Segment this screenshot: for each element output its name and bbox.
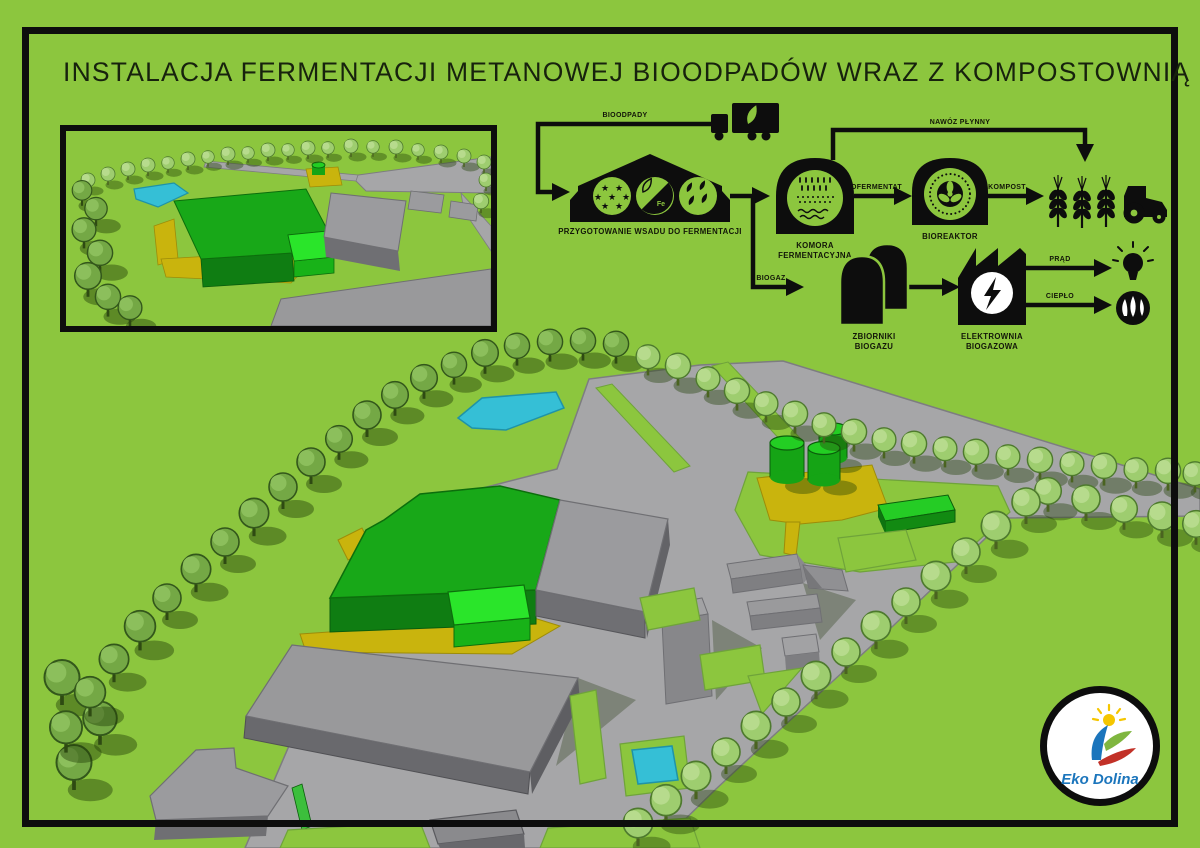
tractor-icon [1124,186,1168,224]
bulb-icon [1113,242,1153,280]
station-label: FERMENTACYJNA [778,251,852,260]
logo-text: Eko Dolina [1061,771,1139,788]
arrowhead [1026,187,1044,205]
arrowhead [942,278,960,296]
poster-title: INSTALACJA FERMENTACJI METANOWEJ BIOODPA… [63,57,1190,88]
inset-illustration [66,131,491,326]
station-label: ELEKTROWNIA [961,332,1023,341]
truck-icon [711,103,779,141]
station-label: PRZYGOTOWANIE WSADU DO FERMENTACJI [558,227,742,236]
label-biogaz: BIOGAZ [756,275,786,282]
logo-red-leaf [1098,748,1136,766]
inset-overview-map [60,125,497,332]
label-nawoz-plynny: NAWÓZ PŁYNNY [930,117,991,126]
svg-text:★: ★ [622,193,630,203]
sun-icon [1093,705,1125,726]
leaves-icon [679,177,717,215]
inset-small-grey [408,191,444,213]
eko-dolina-logo: Eko Dolina [1040,686,1160,806]
flame-icon [1116,291,1150,325]
station-bioreaktor: BIOREAKTOR [912,158,988,241]
arrowhead [1094,259,1112,277]
station-label: BIOGAZOWA [966,342,1018,351]
station-label: BIOREAKTOR [922,232,978,241]
fe-label: Fe [657,201,665,208]
label-prad: PRĄD [1049,256,1070,263]
arrowhead [1076,144,1094,162]
label-bioodpady: BIOODPADY [602,112,647,119]
poster: INSTALACJA FERMENTACJI METANOWEJ BIOODPA… [0,0,1200,848]
station-elektrownia: ELEKTROWNIA BIOGAZOWA [958,248,1026,351]
arrowhead [1094,296,1112,314]
eko-dolina-logo-mark: Eko Dolina [1052,698,1148,794]
station-label: KOMORA [796,241,834,250]
station-zbiorniki: ZBIORNIKI BIOGAZU [840,244,908,351]
arrowhead [552,183,570,201]
small-pond [632,746,678,784]
station-przygotowanie: ★ ★ ★ ★ ★ ★ ★ Fe PRZYGOTOWANIE WSADU DO … [558,154,742,236]
svg-text:★: ★ [615,202,623,212]
wheat-icon [1048,175,1116,228]
logo-green-leaf [1104,731,1132,751]
fe-leaf-icon: Fe [636,177,674,215]
annex-roof [448,585,530,625]
label-cieplo: CIEPŁO [1046,293,1074,300]
label-kompost: KOMPOST [988,184,1026,191]
station-komora: KOMORA FERMENTACYJNA [776,158,854,260]
station-label: ZBIORNIKI [853,332,896,341]
label-pofermentat: POFERMENTAT [846,184,902,191]
station-label: BIOGAZU [855,342,893,351]
svg-text:★: ★ [601,202,609,212]
process-flow-diagram: BIOODPADY NAWÓZ PŁYNNY POFERMENTAT KOMPO… [510,95,1180,360]
arrowhead [786,278,804,296]
l-building-front [154,816,268,840]
